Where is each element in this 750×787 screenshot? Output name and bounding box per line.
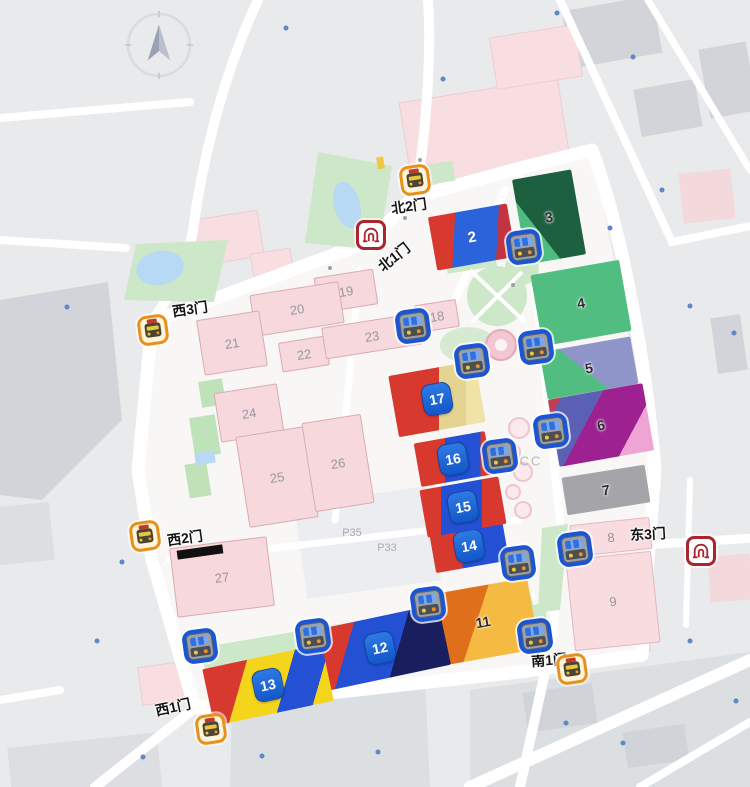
bus-station-icon-wrap[interactable] (556, 530, 594, 568)
bus-glyph (185, 631, 214, 660)
bus-station-icon[interactable] (516, 617, 554, 655)
shuttle-station-icon-wrap[interactable] (398, 163, 432, 197)
area-label-P33: P33 (377, 542, 397, 554)
shuttle-station-icon[interactable] (128, 519, 162, 553)
bus-station-icon[interactable] (409, 585, 447, 623)
hall-badge-17[interactable]: 17 (419, 381, 454, 418)
hall-label-22: 22 (296, 346, 312, 361)
bus-station-icon[interactable] (505, 228, 543, 266)
bus-station-icon-wrap[interactable] (516, 617, 554, 655)
hall-9[interactable]: 9 (565, 551, 660, 651)
bus-station-icon-wrap[interactable] (453, 342, 491, 380)
shuttle-glyph (563, 661, 581, 677)
hall-label-4: 4 (576, 295, 586, 310)
hall-label-3: 3 (544, 209, 554, 224)
shuttle-station-icon-wrap[interactable] (128, 519, 162, 553)
bus-station-icon[interactable] (556, 530, 594, 568)
shuttle-glyph (136, 528, 154, 544)
metro-station-icon[interactable] (356, 220, 386, 250)
bus-glyph (413, 589, 442, 618)
hall-label-23: 23 (364, 328, 380, 343)
hall-badge-14[interactable]: 14 (451, 528, 486, 565)
bus-glyph (521, 332, 550, 361)
metro-station-icon-wrap[interactable] (686, 536, 716, 566)
bus-glyph (503, 548, 532, 577)
gate-label-7: 东3门 (630, 523, 667, 545)
gate-label-5: 西1门 (153, 693, 192, 720)
hall-label-25: 25 (269, 469, 285, 484)
bus-glyph (509, 232, 538, 261)
shuttle-station-icon-wrap[interactable] (136, 313, 170, 347)
area-label-CC: CC (520, 454, 543, 469)
hall-label-20: 20 (289, 301, 305, 316)
compass-icon (125, 11, 193, 79)
hall-label-9: 9 (609, 594, 618, 608)
bus-station-icon-wrap[interactable] (532, 412, 570, 450)
shuttle-station-icon[interactable] (194, 712, 228, 746)
bus-station-icon[interactable] (532, 412, 570, 450)
hall-26[interactable]: 26 (301, 414, 374, 512)
bus-station-icon-wrap[interactable] (394, 307, 432, 345)
metro-glyph (692, 542, 710, 560)
hall-2[interactable]: 2 (428, 203, 516, 270)
hall-label-24: 24 (241, 405, 257, 420)
shuttle-glyph (144, 322, 162, 338)
hall-badge-12[interactable]: 12 (362, 629, 398, 667)
shuttle-glyph (406, 172, 424, 188)
bus-station-icon[interactable] (181, 627, 219, 665)
bus-glyph (485, 441, 514, 470)
hall-label-11: 11 (474, 614, 491, 630)
hall-label-6: 6 (596, 417, 606, 432)
hall-badge-16[interactable]: 16 (435, 441, 470, 478)
shuttle-station-icon[interactable] (136, 313, 170, 347)
bus-station-icon-wrap[interactable] (517, 328, 555, 366)
bus-station-icon-wrap[interactable] (499, 544, 537, 582)
hall-label-8: 8 (607, 530, 616, 544)
hall-badge-13[interactable]: 13 (250, 666, 286, 704)
metro-glyph (362, 226, 380, 244)
bus-glyph (298, 621, 327, 650)
shuttle-station-icon-wrap[interactable] (194, 712, 228, 746)
hall-label-26: 26 (330, 455, 346, 470)
exhibition-map[interactable]: 2345678911121314151617181920212223242526… (0, 0, 750, 787)
hall-label-7: 7 (601, 482, 611, 497)
bus-station-icon[interactable] (453, 342, 491, 380)
bus-station-icon[interactable] (294, 617, 332, 655)
shuttle-station-icon[interactable] (398, 163, 432, 197)
gate-label-1: 北2门 (390, 194, 428, 219)
bus-station-icon[interactable] (481, 437, 519, 475)
bus-station-icon-wrap[interactable] (409, 585, 447, 623)
metro-station-icon-wrap[interactable] (356, 220, 386, 250)
bus-glyph (398, 311, 427, 340)
bus-glyph (536, 416, 565, 445)
bus-glyph (560, 534, 589, 563)
bus-glyph (520, 621, 549, 650)
hall-7[interactable]: 7 (562, 465, 651, 516)
bus-glyph (457, 346, 486, 375)
hall-label-2: 2 (467, 229, 478, 245)
hall-label-5: 5 (584, 360, 594, 375)
hall-label-27: 27 (214, 570, 230, 585)
shuttle-station-icon-wrap[interactable] (555, 652, 589, 686)
gate-label-3: 西3门 (171, 297, 209, 322)
shuttle-glyph (202, 721, 220, 737)
bus-station-icon-wrap[interactable] (481, 437, 519, 475)
hall-label-21: 21 (224, 335, 240, 350)
hall-21[interactable]: 21 (196, 310, 268, 375)
area-label-P35: P35 (342, 527, 362, 539)
bus-station-icon[interactable] (517, 328, 555, 366)
bus-station-icon[interactable] (394, 307, 432, 345)
bus-station-icon-wrap[interactable] (294, 617, 332, 655)
bus-station-icon-wrap[interactable] (505, 228, 543, 266)
hall-label-18: 18 (429, 308, 445, 323)
shuttle-station-icon[interactable] (555, 652, 589, 686)
bus-station-icon-wrap[interactable] (181, 627, 219, 665)
bus-station-icon[interactable] (499, 544, 537, 582)
metro-station-icon[interactable] (686, 536, 716, 566)
hall-badge-15[interactable]: 15 (445, 489, 480, 526)
